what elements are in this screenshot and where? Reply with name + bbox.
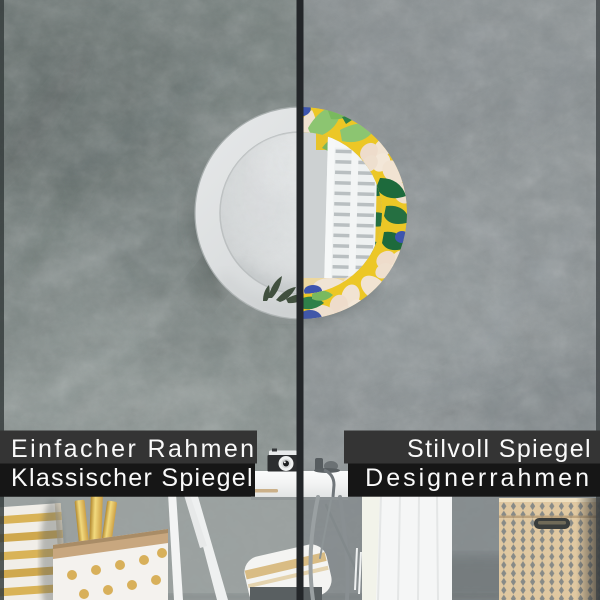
svg-text:Einfacher Rahmen: Einfacher Rahmen — [11, 435, 256, 463]
svg-text:Designerrahmen: Designerrahmen — [365, 464, 592, 492]
svg-text:Klassischer Spiegel: Klassischer Spiegel — [11, 464, 254, 492]
svg-text:Stilvoll Spiegel: Stilvoll Spiegel — [407, 435, 592, 463]
